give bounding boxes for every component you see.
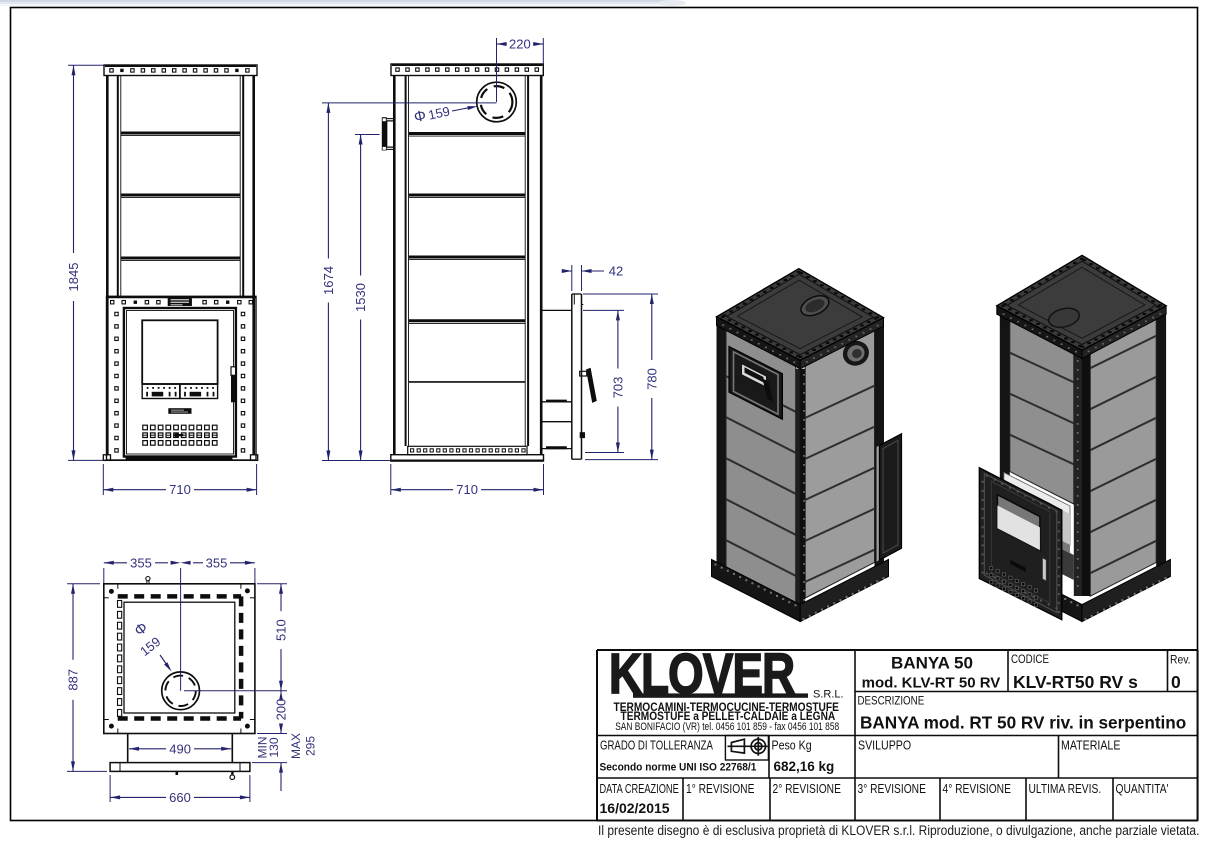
svg-text:710: 710 [169,482,191,497]
svg-text:MAX: MAX [289,733,303,759]
svg-text:2° REVISIONE: 2° REVISIONE [773,783,842,796]
svg-text:BANYA 50: BANYA 50 [891,654,973,673]
svg-text:16/02/2015: 16/02/2015 [600,800,670,816]
svg-text:Il presente disegno è di esclu: Il presente disegno è di esclusiva propr… [598,822,1199,838]
svg-text:780: 780 [644,368,659,390]
svg-text:130: 130 [267,737,281,757]
svg-text:SAN BONIFACIO (VR) tel. 0456: SAN BONIFACIO (VR) tel. 0456 101 859 - f… [615,721,839,734]
svg-text:BANYA mod. RT 50 RV riv. in se: BANYA mod. RT 50 RV riv. in serpentino [860,712,1187,732]
svg-text:295: 295 [304,736,318,756]
svg-text:1674: 1674 [321,266,336,295]
svg-text:QUANTITA': QUANTITA' [1116,783,1169,796]
svg-text:Peso Kg: Peso Kg [772,739,812,753]
svg-text:DATA CREAZIONE: DATA CREAZIONE [600,783,679,797]
svg-text:887: 887 [66,669,81,691]
svg-text:510: 510 [274,619,289,641]
svg-text:mod. KLV-RT 50 RV: mod. KLV-RT 50 RV [862,675,1001,692]
svg-text:1530: 1530 [353,283,368,312]
svg-text:3° REVISIONE: 3° REVISIONE [858,783,927,796]
svg-text:GRADO DI TOLLERANZA: GRADO DI TOLLERANZA [600,739,713,752]
svg-text:S.R.L.: S.R.L. [813,689,844,701]
svg-text:355: 355 [206,555,228,570]
svg-text:MATERIALE: MATERIALE [1061,739,1121,753]
svg-text:1845: 1845 [66,263,81,292]
svg-text:Rev.: Rev. [1170,654,1191,667]
svg-text:660: 660 [169,790,191,805]
svg-text:682,16 kg: 682,16 kg [774,759,835,774]
svg-text:CODICE: CODICE [1011,653,1049,666]
svg-text:SVILUPPO: SVILUPPO [858,739,911,753]
svg-text:42: 42 [609,264,623,279]
svg-text:490: 490 [169,741,191,756]
svg-text:DESCRIZIONE: DESCRIZIONE [858,695,925,708]
svg-text:1° REVISIONE: 1° REVISIONE [686,783,755,796]
svg-text:710: 710 [456,482,478,497]
svg-text:200: 200 [274,699,289,721]
svg-text:220: 220 [509,37,531,52]
svg-text:703: 703 [610,377,625,399]
svg-text:Secondo norme UNI ISO 22768/1: Secondo norme UNI ISO 22768/1 [600,761,757,774]
svg-text:KLV-RT50 RV s: KLV-RT50 RV s [1013,672,1138,692]
svg-text:4° REVISIONE: 4° REVISIONE [943,783,1012,796]
svg-text:355: 355 [130,555,152,570]
svg-text:ULTIMA REVIS.: ULTIMA REVIS. [1029,783,1102,796]
svg-text:0: 0 [1171,672,1181,692]
